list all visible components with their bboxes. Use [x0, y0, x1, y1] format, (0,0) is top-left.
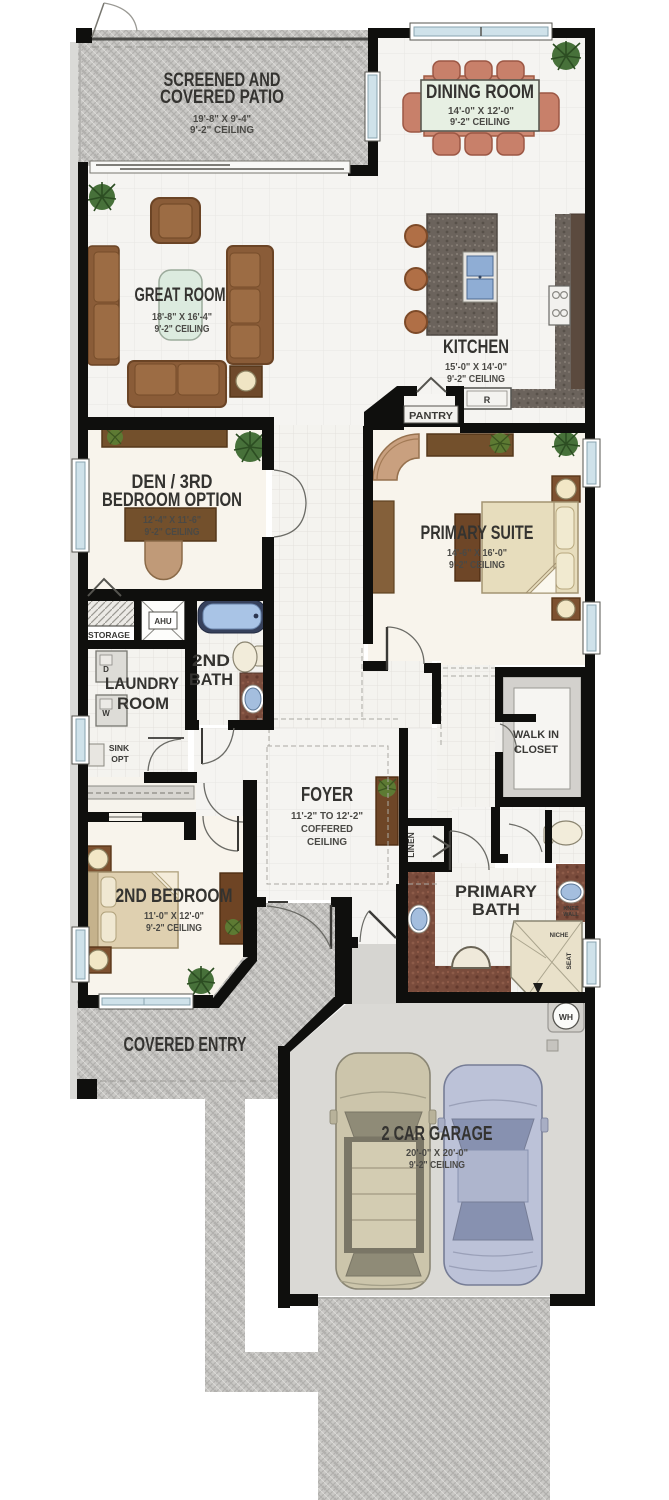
- svg-text:W: W: [102, 709, 110, 718]
- svg-text:9'-2" CEILING: 9'-2" CEILING: [155, 324, 210, 335]
- svg-text:OPT: OPT: [111, 754, 129, 764]
- svg-text:19'-8" X 9'-4": 19'-8" X 9'-4": [193, 114, 251, 125]
- svg-text:STORAGE: STORAGE: [88, 630, 130, 640]
- svg-text:14'-6" X 16'-0": 14'-6" X 16'-0": [447, 548, 507, 559]
- svg-text:2 CAR GARAGE: 2 CAR GARAGE: [382, 1123, 493, 1145]
- svg-text:NICHE: NICHE: [550, 933, 569, 939]
- svg-text:D: D: [103, 665, 109, 674]
- svg-text:WALL: WALL: [563, 912, 579, 918]
- svg-text:2ND BEDROOM: 2ND BEDROOM: [116, 886, 233, 907]
- svg-text:PANTRY: PANTRY: [409, 411, 453, 422]
- svg-text:SINK: SINK: [109, 743, 130, 753]
- svg-text:AHU: AHU: [154, 617, 172, 626]
- svg-text:FOYER: FOYER: [301, 784, 353, 806]
- svg-text:2ND: 2ND: [192, 651, 230, 670]
- svg-text:SEAT: SEAT: [566, 953, 573, 970]
- svg-text:CLOSET: CLOSET: [514, 744, 558, 756]
- svg-text:LAUNDRY: LAUNDRY: [105, 674, 180, 693]
- svg-text:COVERED PATIO: COVERED PATIO: [160, 87, 284, 108]
- svg-text:9'-2" CEILING: 9'-2" CEILING: [450, 117, 510, 128]
- svg-text:R: R: [484, 395, 491, 405]
- svg-text:BATH: BATH: [472, 900, 520, 919]
- svg-text:12'-4" X 11'-6": 12'-4" X 11'-6": [143, 515, 201, 526]
- svg-text:DINING ROOM: DINING ROOM: [426, 82, 534, 103]
- svg-text:BEDROOM OPTION: BEDROOM OPTION: [102, 490, 242, 511]
- svg-text:9'-2" CEILING: 9'-2" CEILING: [190, 125, 254, 136]
- svg-text:BATH: BATH: [189, 670, 233, 689]
- svg-text:PRIMARY SUITE: PRIMARY SUITE: [421, 523, 534, 544]
- svg-text:9'-2" CEILING: 9'-2" CEILING: [409, 1160, 465, 1171]
- svg-text:WALK IN: WALK IN: [513, 729, 559, 741]
- svg-text:LINEN: LINEN: [406, 832, 416, 858]
- svg-text:20'-0" X 20'-0": 20'-0" X 20'-0": [406, 1148, 468, 1159]
- svg-text:KITCHEN: KITCHEN: [443, 337, 509, 358]
- svg-text:9'-2" CEILING: 9'-2" CEILING: [145, 527, 200, 538]
- svg-text:GREAT ROOM: GREAT ROOM: [135, 285, 226, 306]
- svg-text:11'-0" X 12'-0": 11'-0" X 12'-0": [144, 911, 204, 922]
- svg-text:CEILING: CEILING: [307, 837, 347, 848]
- svg-text:9'-2" CEILING: 9'-2" CEILING: [146, 923, 202, 934]
- svg-text:9'-2" CEILING: 9'-2" CEILING: [449, 560, 505, 571]
- svg-text:15'-0" X 14'-0": 15'-0" X 14'-0": [445, 362, 507, 373]
- svg-text:ROOM: ROOM: [117, 694, 169, 713]
- svg-text:18'-8" X 16'-4": 18'-8" X 16'-4": [152, 312, 212, 323]
- svg-text:PRIMARY: PRIMARY: [455, 882, 538, 901]
- svg-text:COVERED ENTRY: COVERED ENTRY: [124, 1034, 247, 1056]
- svg-text:14'-0" X 12'-0": 14'-0" X 12'-0": [448, 106, 514, 117]
- svg-text:11'-2" TO 12'-2": 11'-2" TO 12'-2": [291, 811, 363, 822]
- svg-text:COFFERED: COFFERED: [301, 824, 353, 835]
- svg-text:9'-2" CEILING: 9'-2" CEILING: [447, 374, 505, 385]
- svg-text:WH: WH: [559, 1012, 573, 1022]
